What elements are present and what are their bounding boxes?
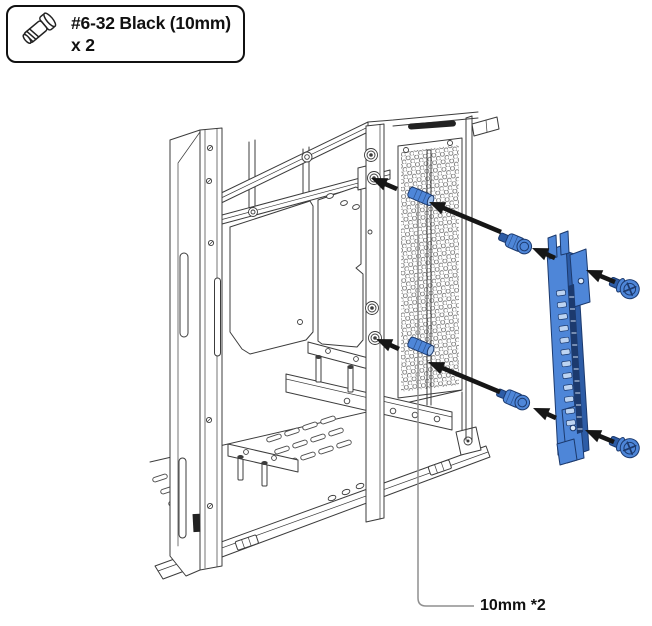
dimension-label: 10mm *2 bbox=[480, 597, 546, 615]
left-pillar bbox=[170, 128, 222, 576]
right-edge bbox=[466, 116, 499, 442]
assembly-diagram bbox=[0, 0, 652, 626]
standoff-loose-top bbox=[497, 229, 534, 256]
arrow-bracket-bottom bbox=[530, 402, 556, 420]
hardware-callout: #6-32 Black (10mm) x 2 bbox=[6, 5, 245, 63]
screw-icon bbox=[16, 9, 64, 59]
pcie-bracket-part bbox=[547, 231, 590, 465]
callout-part-name: #6-32 Black (10mm) bbox=[71, 12, 231, 34]
standoff-loose-bottom bbox=[495, 385, 532, 412]
callout-quantity: x 2 bbox=[71, 34, 231, 56]
case-foot-right bbox=[456, 427, 481, 455]
case-chassis-drawing bbox=[150, 112, 499, 606]
thumbscrew-top bbox=[607, 272, 642, 301]
thumbscrew-bottom bbox=[607, 431, 642, 460]
